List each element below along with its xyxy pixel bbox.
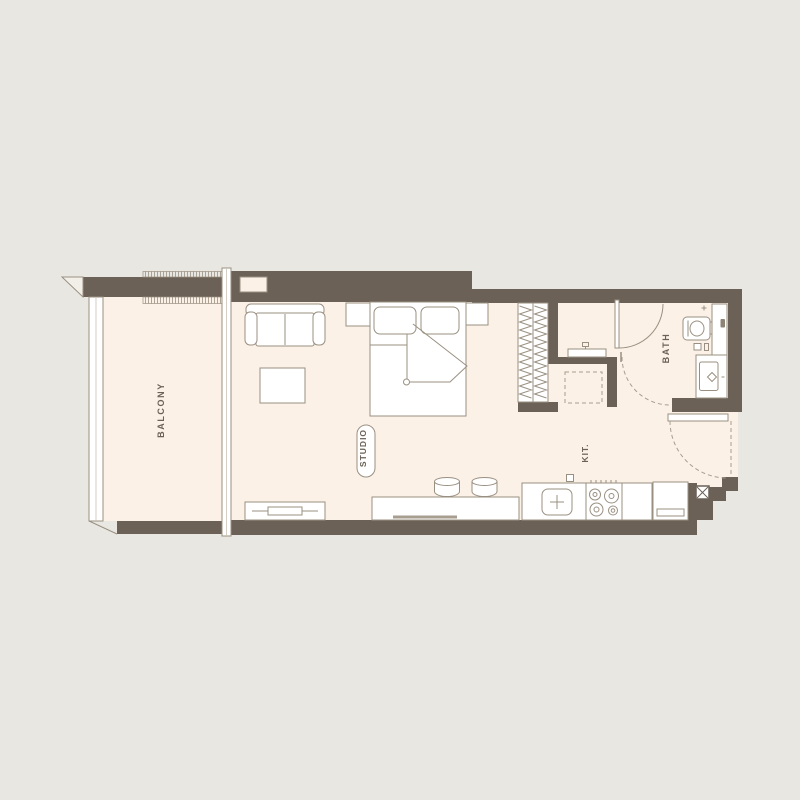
fridge-body (653, 482, 688, 520)
shelf-counter (712, 304, 727, 355)
wall-bottom (231, 520, 697, 535)
sliding-window-mullion (222, 268, 231, 536)
wall-step-3 (722, 477, 738, 491)
wall-hall (607, 357, 617, 407)
floor-plan-canvas: BALCONY STUDIO KIT. BATH (0, 0, 800, 800)
wall-laundry (548, 357, 608, 364)
railing-end-diagonal (89, 521, 117, 534)
switch-box (567, 475, 574, 482)
laundry-counter (568, 349, 606, 357)
louver-strip-bottom (143, 297, 222, 304)
bar-stool-2-top (472, 478, 497, 486)
wall-wardrobe-right (548, 300, 558, 357)
wall-step-1 (697, 499, 713, 520)
nightstand-left (346, 303, 371, 326)
sofa (245, 304, 325, 346)
toilet-body (683, 317, 710, 340)
wall-bath-bottom (672, 398, 742, 412)
balcony-corner-fin (62, 277, 83, 297)
floor-plan: BALCONY STUDIO KIT. BATH (0, 0, 800, 800)
wall-right (728, 289, 742, 412)
nightstand-right (465, 303, 488, 325)
soap-box-icon (694, 344, 701, 351)
coffee-table (260, 368, 305, 403)
balcony-label: BALCONY (156, 382, 166, 438)
kitchen-sink-unit (522, 483, 586, 520)
tv-console (245, 502, 325, 520)
refrigerator (653, 482, 688, 520)
wall-wardrobe-bottom (518, 402, 558, 412)
pillow-left (374, 307, 416, 334)
sofa-arm-right (313, 312, 325, 345)
louver-strip-top (143, 272, 222, 278)
kitchen-counter (622, 483, 652, 520)
bath-label: BATH (661, 333, 671, 364)
toilet (683, 317, 713, 340)
wall-top-right (472, 289, 742, 303)
accessory-icon (721, 319, 726, 328)
kitchen-island (372, 497, 519, 520)
floor-entry-opening (728, 412, 738, 477)
sofa-arm-left (245, 312, 257, 345)
kitchen-label: KIT. (580, 443, 590, 462)
stove-body (586, 483, 622, 520)
wall-balcony-top (83, 277, 222, 297)
wardrobe (518, 303, 548, 402)
studio-label-pill: STUDIO (357, 425, 375, 477)
wall-balcony-bottom (117, 521, 222, 534)
entry-door-leaf (668, 414, 728, 421)
pillow-right (421, 307, 459, 334)
bar-stool-1-top (435, 478, 460, 486)
washbasin (696, 355, 727, 398)
wall-niche (240, 277, 267, 292)
bathroom-door-leaf (615, 300, 619, 348)
studio-label: STUDIO (358, 429, 368, 467)
stove (586, 480, 622, 520)
service-shaft (696, 486, 709, 499)
island-shadow-line (393, 516, 457, 519)
